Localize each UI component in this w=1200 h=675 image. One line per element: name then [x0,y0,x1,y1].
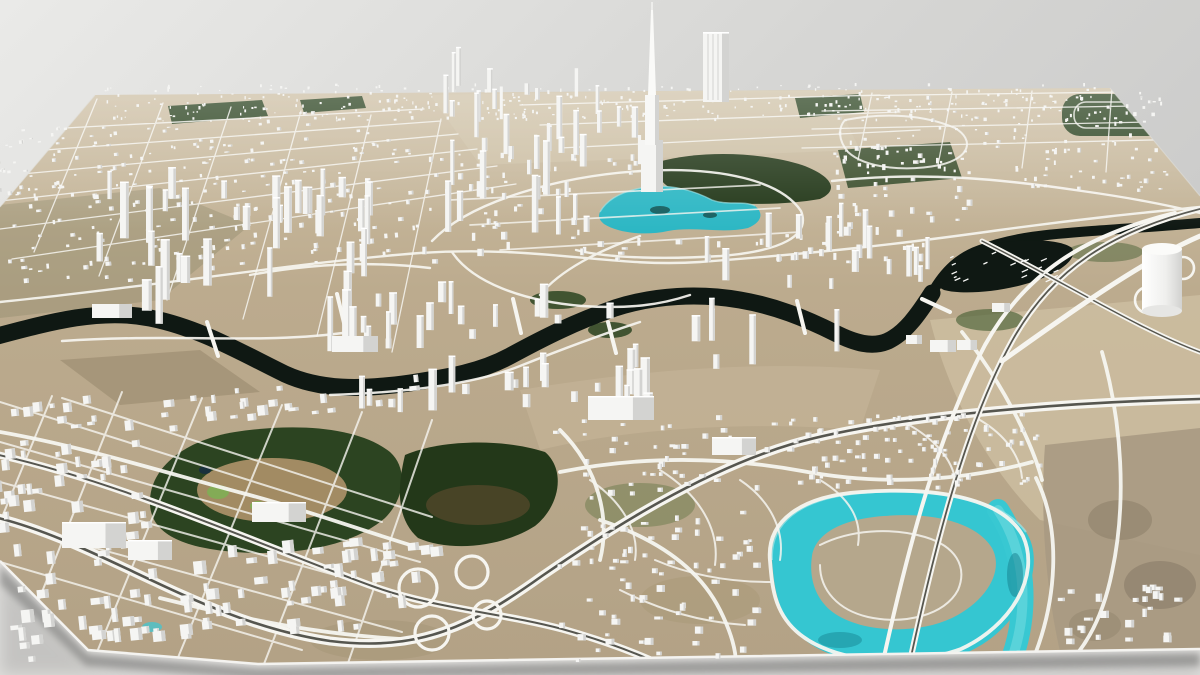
striped-slab-tower [703,32,729,102]
lagoon-deep [818,632,862,648]
scrub-patch [426,485,530,525]
creek-bank-green [956,309,1024,331]
distance-haze [0,80,1200,230]
city-3d-map-render [0,0,1200,675]
cylinder-tower [1142,243,1182,317]
scene-svg [0,0,1200,675]
